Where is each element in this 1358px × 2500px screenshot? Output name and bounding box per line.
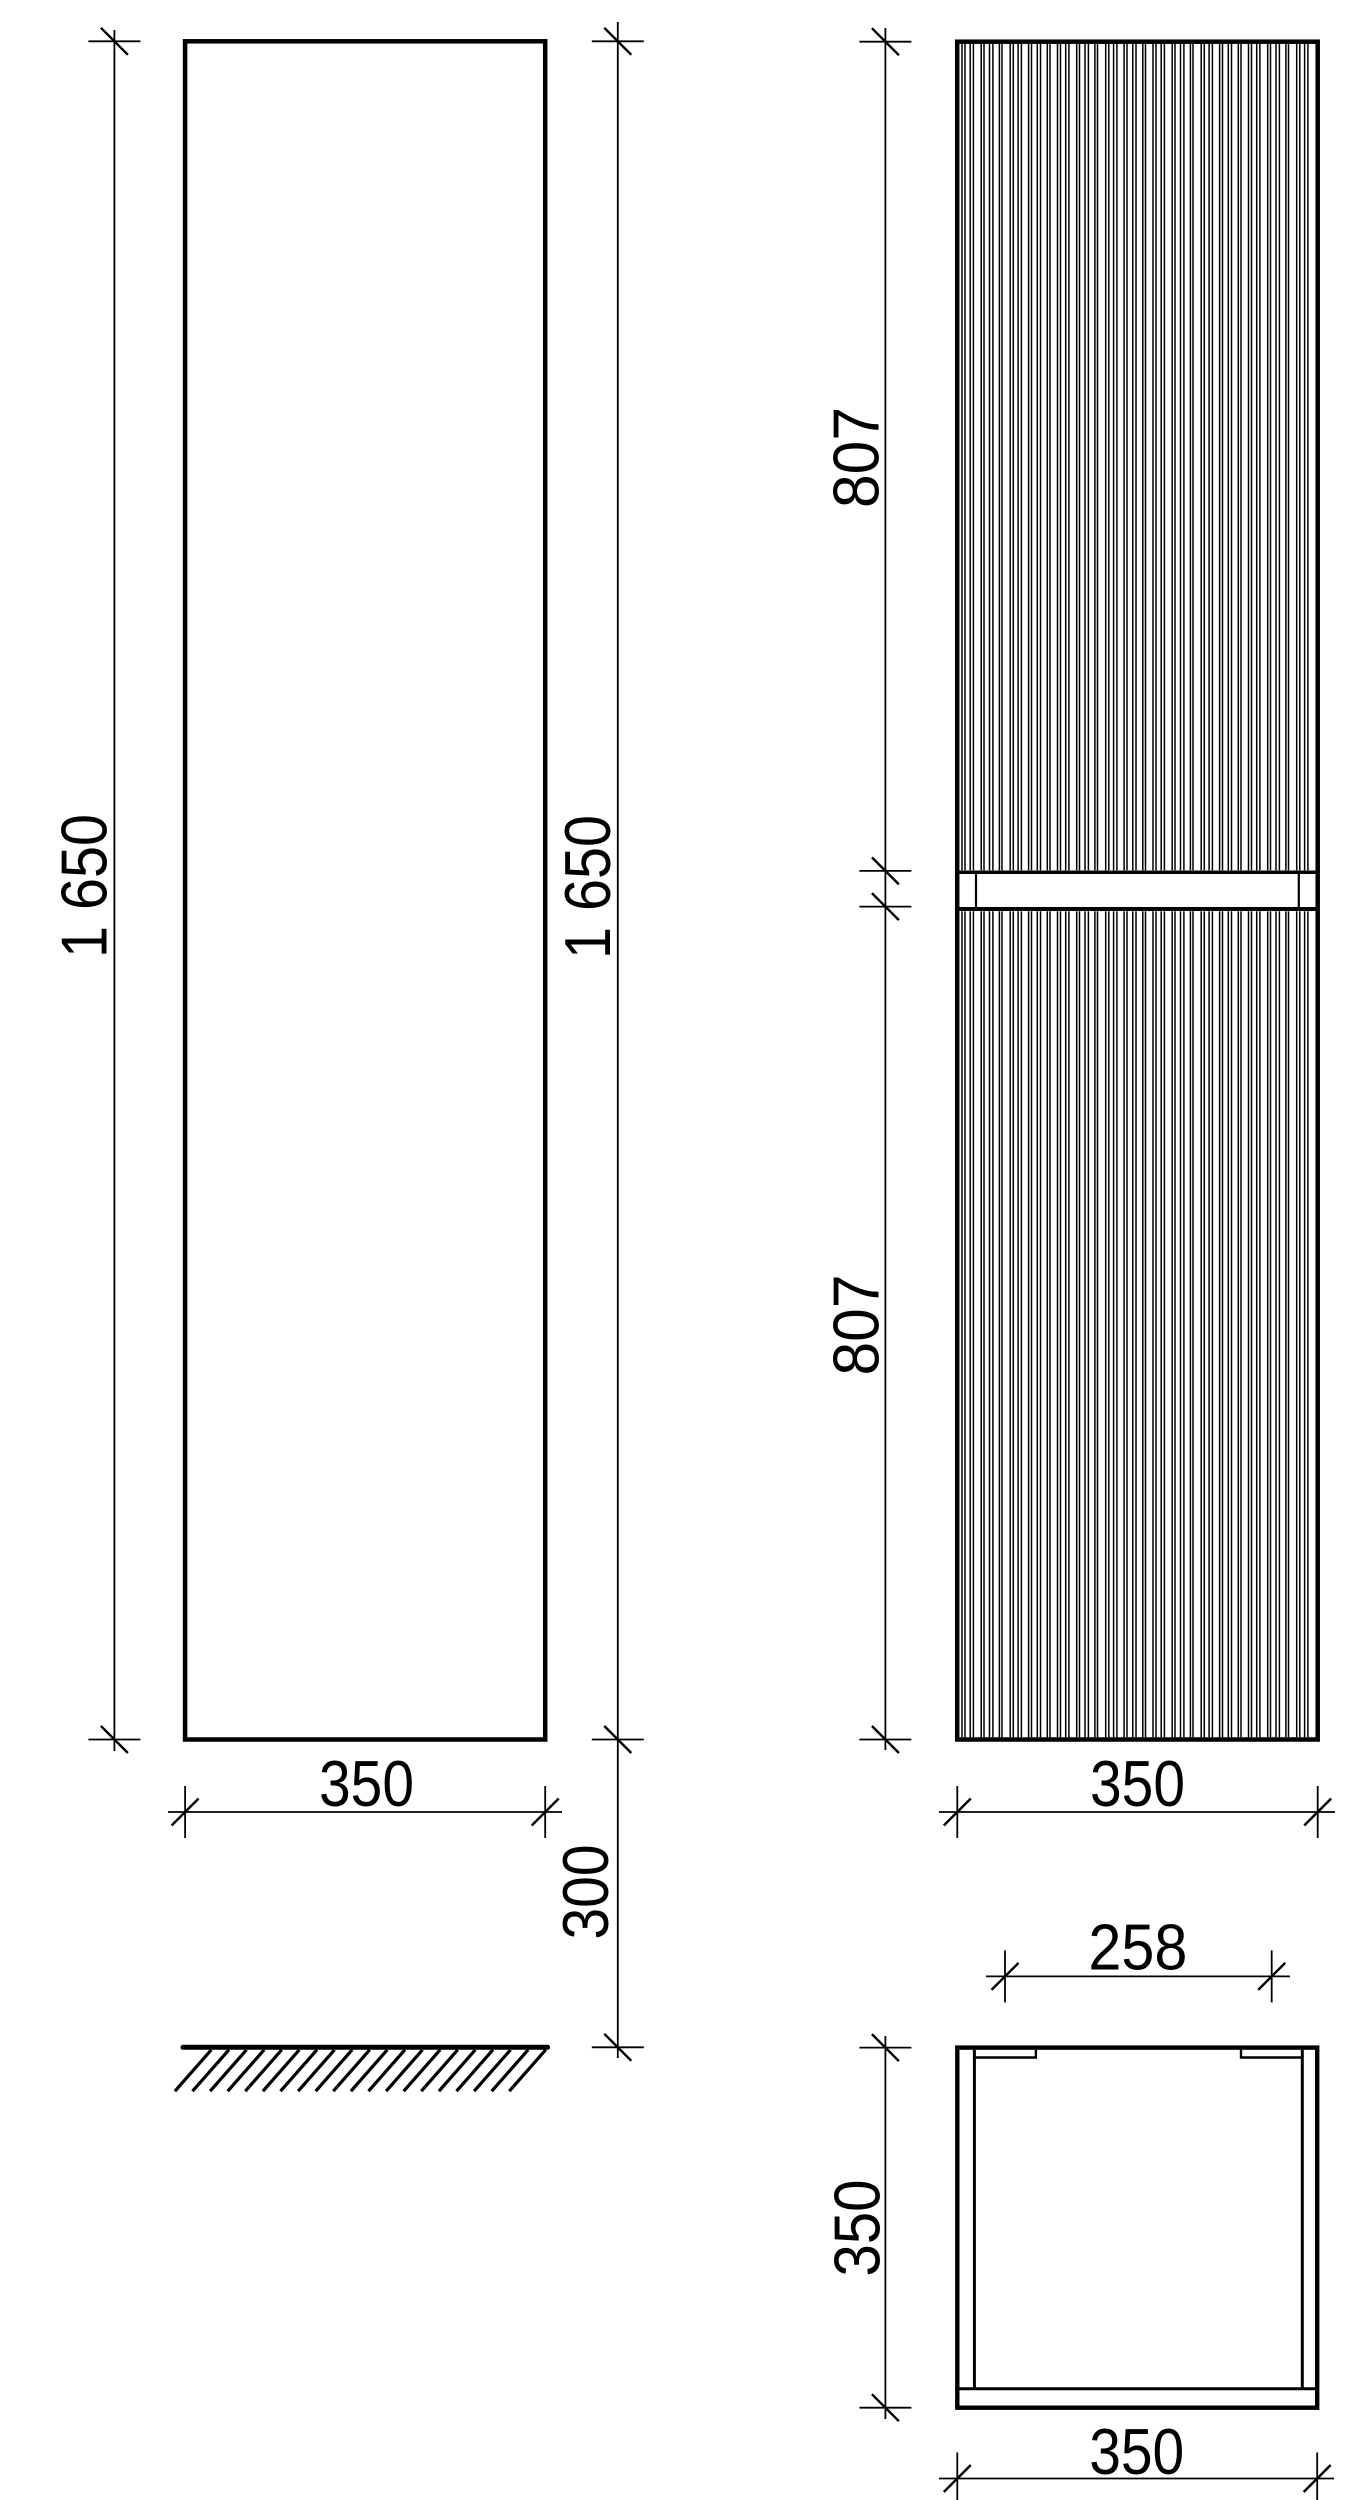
svg-text:807: 807: [819, 1275, 892, 1376]
svg-text:350: 350: [1090, 1747, 1185, 1820]
svg-text:350: 350: [821, 2180, 894, 2277]
svg-text:258: 258: [1088, 1911, 1187, 1984]
svg-text:1 650: 1 650: [551, 815, 624, 959]
svg-text:350: 350: [1089, 2415, 1184, 2488]
svg-text:350: 350: [319, 1747, 414, 1820]
svg-text:807: 807: [819, 407, 892, 508]
svg-text:1 650: 1 650: [48, 814, 121, 958]
svg-text:300: 300: [549, 1845, 622, 1940]
